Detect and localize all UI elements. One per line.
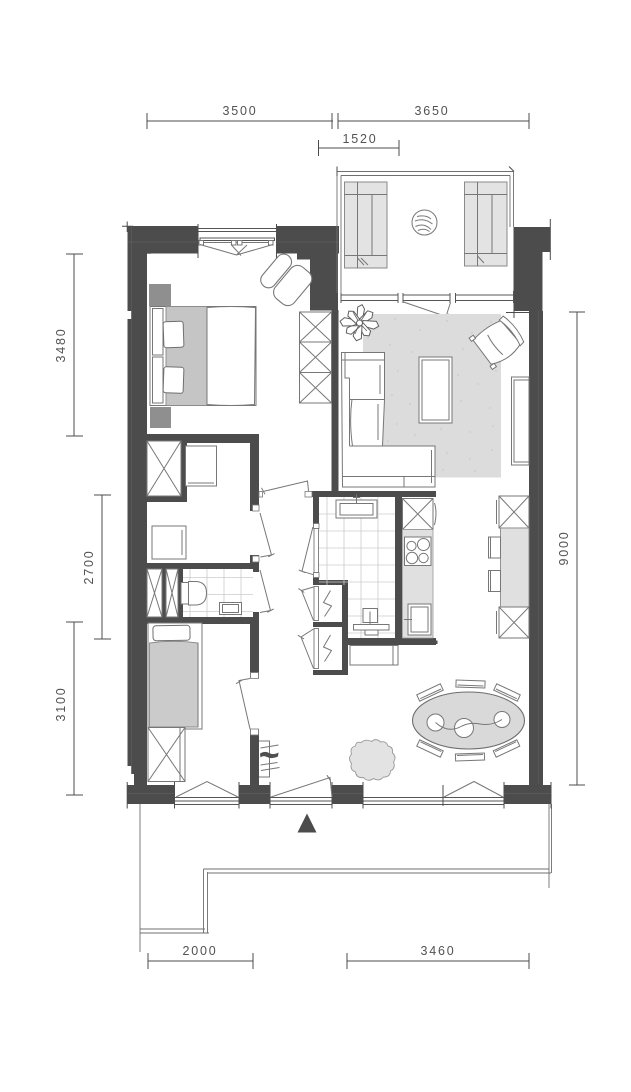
svg-text:9000: 9000	[557, 530, 571, 565]
svg-text:2000: 2000	[182, 944, 217, 958]
svg-text:3460: 3460	[420, 944, 455, 958]
svg-text:3480: 3480	[54, 327, 68, 362]
svg-text:3650: 3650	[414, 104, 449, 118]
svg-text:3100: 3100	[54, 686, 68, 721]
svg-text:3500: 3500	[222, 104, 257, 118]
svg-text:1520: 1520	[342, 132, 377, 146]
svg-text:2700: 2700	[82, 549, 96, 584]
